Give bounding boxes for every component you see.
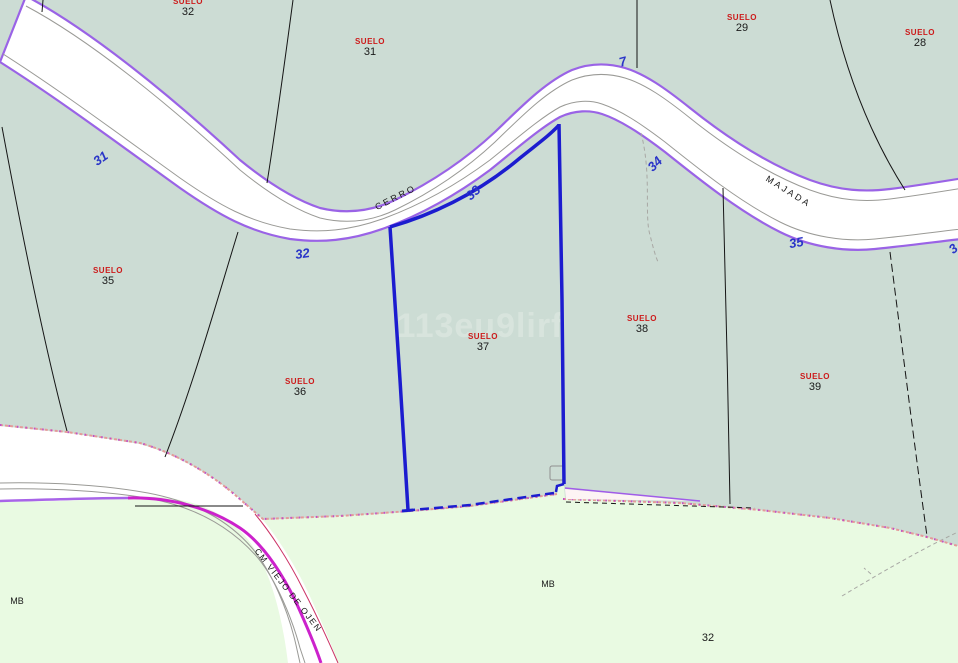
parcel-label-suelo-37[interactable]: SUELO (468, 332, 498, 341)
parcel-label-suelo-35[interactable]: SUELO (93, 266, 123, 275)
area-label-MB-1: MB (541, 579, 555, 589)
parcel-label-suelo-38[interactable]: SUELO (627, 314, 657, 323)
selected-parcel-foot[interactable] (402, 510, 413, 511)
parcel-number-36[interactable]: 36 (294, 386, 306, 398)
parcel-label-suelo-29[interactable]: SUELO (727, 13, 757, 22)
parcel-label-suelo-28[interactable]: SUELO (905, 28, 935, 37)
parcel-number-37[interactable]: 37 (477, 341, 489, 353)
parcel-number-28[interactable]: 28 (914, 37, 926, 49)
area-label-32-2: 32 (702, 632, 714, 644)
map-canvas[interactable]: 113eu9lirf (0, 0, 958, 663)
parcel-number-39[interactable]: 39 (809, 381, 821, 393)
parcel-label-suelo-36[interactable]: SUELO (285, 377, 315, 386)
road-number-32: 32 (294, 245, 311, 262)
parcel-number-29[interactable]: 29 (736, 22, 748, 34)
parcel-number-32[interactable]: 32 (182, 6, 194, 18)
parcel-label-suelo-31[interactable]: SUELO (355, 37, 385, 46)
parcel-number-31[interactable]: 31 (364, 46, 376, 58)
parcel-number-35[interactable]: 35 (102, 275, 114, 287)
parcel-label-suelo-39[interactable]: SUELO (800, 372, 830, 381)
cadastral-map-viewport[interactable]: 113eu9lirf (0, 0, 958, 663)
area-label-MB-0: MB (10, 596, 24, 606)
parcel-number-38[interactable]: 38 (636, 323, 648, 335)
